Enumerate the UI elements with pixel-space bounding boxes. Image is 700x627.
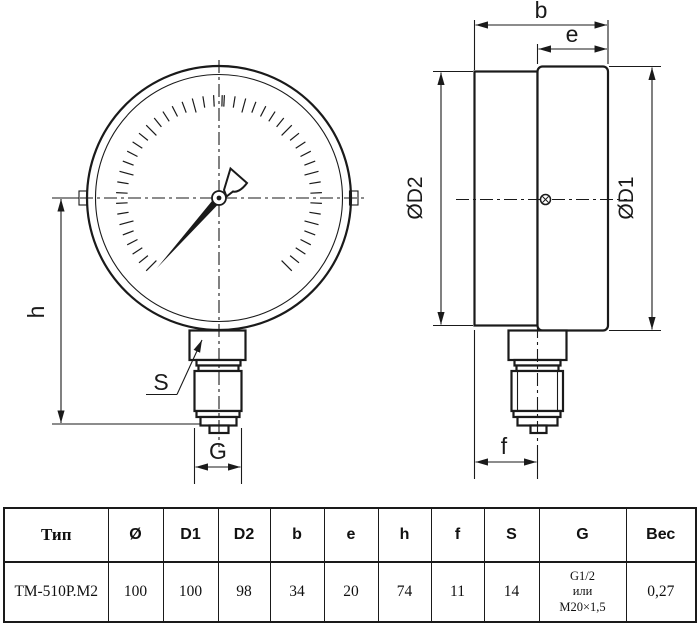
cell-type: ТМ-510Р.М2 (4, 562, 108, 622)
header-s: S (484, 508, 539, 562)
header-diameter: Ø (108, 508, 163, 562)
front-stem (190, 331, 246, 434)
dimension-g-label: G (209, 438, 227, 464)
case-body (475, 72, 538, 326)
cell-f: 11 (431, 562, 484, 622)
dimension-d2: ØD2 (404, 72, 473, 326)
needle-hub-center (217, 196, 222, 201)
dimension-g: G (195, 428, 242, 484)
front-view-gauge (79, 60, 367, 447)
header-d1: D1 (163, 508, 218, 562)
gauge-needle (157, 196, 222, 268)
needle-counterweight (224, 169, 247, 197)
header-b: b (270, 508, 324, 562)
dimension-b: b (475, 0, 609, 70)
dimensions-table: Тип Ø D1 D2 b e h f S G Вес ТМ-510Р.М2 1… (3, 507, 697, 623)
cell-h: 74 (378, 562, 431, 622)
dimension-d1: ØD1 (609, 67, 661, 331)
dimension-h: h (23, 198, 201, 424)
gauge-technical-drawing: h S G (0, 0, 700, 627)
header-type: Тип (4, 508, 108, 562)
dimension-b-label: b (535, 0, 548, 23)
dimension-s-label: S (153, 369, 168, 395)
cell-diameter: 100 (108, 562, 163, 622)
header-weight: Вес (626, 508, 696, 562)
drawing-views: h S G (0, 0, 700, 505)
cell-weight: 0,27 (626, 562, 696, 622)
header-e: e (324, 508, 378, 562)
dimension-e-label: e (566, 21, 579, 47)
dimension-d1-label: ØD1 (615, 176, 638, 219)
dimension-d2-label: ØD2 (404, 176, 427, 219)
cell-g: G1/2 или М20×1,5 (539, 562, 626, 622)
header-f: f (431, 508, 484, 562)
header-g: G (539, 508, 626, 562)
table-header-row: Тип Ø D1 D2 b e h f S G Вес (4, 508, 696, 562)
cell-d1: 100 (163, 562, 218, 622)
cell-e: 20 (324, 562, 378, 622)
dimension-e: e (538, 21, 608, 64)
cell-s: 14 (484, 562, 539, 622)
header-d2: D2 (218, 508, 270, 562)
table-data-row: ТМ-510Р.М2 100 100 98 34 20 74 11 14 G1/… (4, 562, 696, 622)
side-view-gauge (456, 67, 627, 480)
header-h: h (378, 508, 431, 562)
dimension-f-label: f (501, 433, 508, 459)
dimension-h-label: h (23, 306, 49, 319)
cell-d2: 98 (218, 562, 270, 622)
cell-b: 34 (270, 562, 324, 622)
